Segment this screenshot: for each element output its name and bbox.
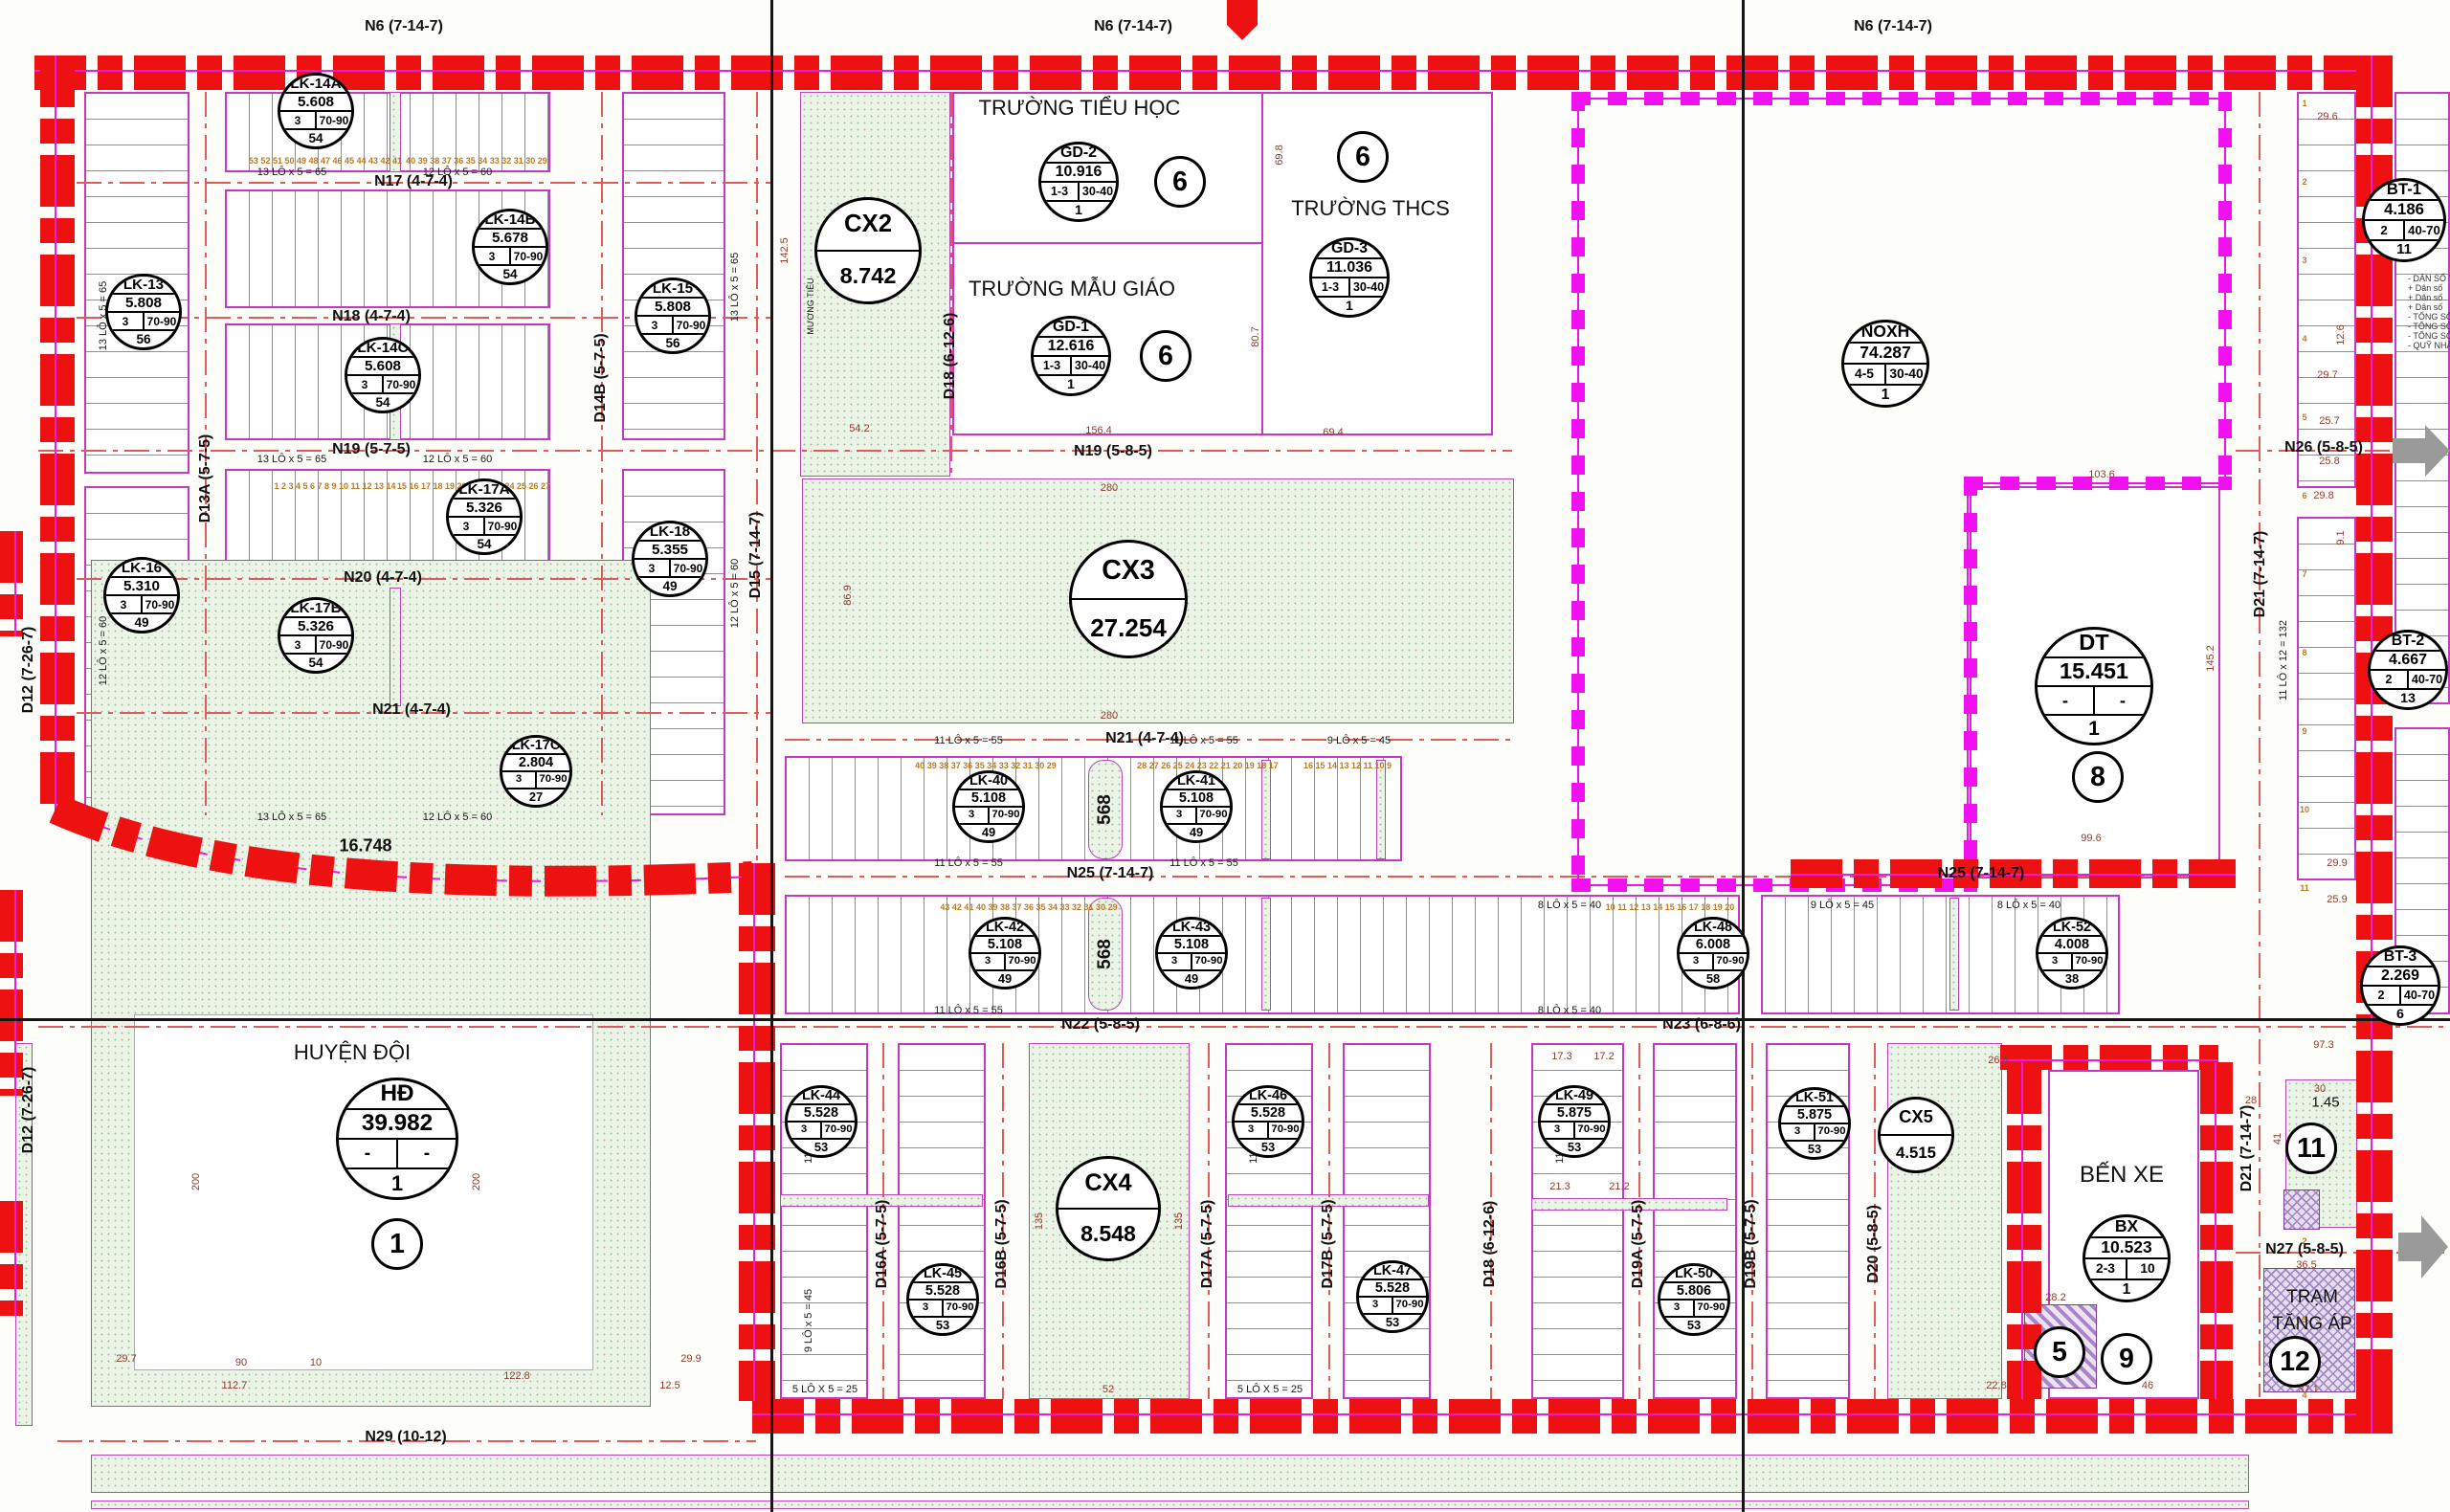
stamp-cell: 3 [788, 1123, 820, 1138]
lot-numbers: 1 [2302, 99, 2306, 108]
stamp-cell: 70-90 [942, 1301, 976, 1316]
stamp-row: 39.982 [339, 1108, 456, 1138]
lot-count-caption: 12 LÔ x 5 = 60 [423, 454, 492, 465]
unit-number-circle: 6 [1337, 131, 1389, 183]
stamp-row: 2.269 [2363, 966, 2438, 985]
dimension-text: 21.2 [1609, 1181, 1629, 1192]
stamp-floors-density: 370-90 [449, 516, 520, 534]
stamp-floors-density: 370-90 [1158, 952, 1225, 969]
stamp-row: 6.008 [1680, 935, 1747, 952]
dimension-text: 26.8 [1988, 1055, 2008, 1066]
lot-numbers: 16 15 14 13 12 11 10 9 [1303, 761, 1392, 770]
stamp-row: 2.804 [502, 753, 569, 770]
lot-count-caption: 11 LÔ x 5 = 55 [934, 857, 1003, 869]
lot-count-caption: 9 LÔ x 5 = 45 [1811, 900, 1874, 911]
stamp-cell: 3 [347, 376, 382, 392]
dimension-text: 9.1 [2335, 530, 2347, 545]
stamp-cell: 70-90 [2071, 954, 2105, 969]
stamp-cell: 3 [971, 954, 1004, 969]
dimension-text: 41 [2272, 1133, 2283, 1145]
stamp-floors-density: 370-90 [280, 110, 351, 128]
lot-count-caption: 5 LÔ X 5 = 25 [1237, 1384, 1303, 1395]
stamp-cell: - [339, 1140, 396, 1167]
stamp-floors-density: 370-90 [637, 315, 708, 333]
stamp-floors-density: 370-90 [1541, 1121, 1608, 1138]
unit-number-circle: 5 [2034, 1326, 2085, 1378]
parcel-stamp-LK-49: LK-495.875370-9053 [1538, 1085, 1611, 1158]
sheet-grid-line [770, 0, 773, 1512]
road-label: N29 (10-12) [365, 1429, 446, 1446]
stamp-cell: 3 [1680, 954, 1712, 969]
dimension-text: 69.8 [1274, 145, 1285, 165]
road-label: D18 (6-12-6) [1481, 1201, 1499, 1288]
stamp-cell: 3 [1660, 1301, 1693, 1316]
parcel-stamp-LK-40: LK-405.108370-9049 [952, 770, 1025, 843]
stamp-row: 5.608 [280, 92, 351, 110]
stamp-floors-density: 370-90 [1163, 806, 1230, 823]
stamp-cell: - [396, 1140, 456, 1167]
area-label: 568 [1095, 794, 1116, 825]
stamp-cell: 70-90 [382, 376, 418, 392]
stamp-cell: 3 [637, 317, 672, 333]
parcel-stamp-GD-1: GD-112.6161-330-401 [1031, 316, 1111, 396]
parcel-stamp-BT-2: BT-24.667240-7013 [2368, 630, 2448, 710]
road-label: D17A (5-7-5) [1199, 1200, 1216, 1289]
stamp-row: 5.355 [635, 540, 705, 558]
dimension-text: 25.7 [2319, 415, 2339, 427]
parcel-stamp-LK-45: LK-455.528370-9053 [906, 1263, 979, 1336]
stamp-cell: 3 [635, 560, 669, 576]
stamp-row: 5.806 [1660, 1281, 1727, 1299]
stamp-cell: 70-90 [1267, 1123, 1302, 1138]
stamp-row: 74.287 [1844, 342, 1927, 363]
parcel-stamp-LK-43: LK-435.108370-9049 [1155, 917, 1228, 989]
parcel-stamp-LK-41: LK-415.108370-9049 [1160, 770, 1233, 843]
stamp-cell: 30-40 [1070, 357, 1108, 374]
stamp-row: 5.108 [1158, 935, 1225, 952]
stamp-cell: 30-40 [1348, 278, 1387, 296]
road-label: D15 (7-14-7) [747, 512, 765, 599]
road-label: N21 (4-7-4) [1105, 730, 1184, 747]
dimension-text: 17.3 [1551, 1051, 1571, 1062]
dimension-text: 142.5 [779, 237, 791, 264]
stamp-cell: 3 [1158, 954, 1191, 969]
green-area-stamp-CX3: CX327.254 [1069, 540, 1188, 658]
unit-number-circle: 12 [2269, 1336, 2321, 1388]
stamp-row: 4.667 [2371, 650, 2445, 669]
stamp-cell: 70-90 [315, 112, 351, 128]
stamp-floors-density: 370-90 [2038, 952, 2105, 969]
parcel-stamp-DT: DT15.451--1 [2035, 627, 2153, 745]
dimension-text: 52 [1102, 1384, 1114, 1395]
lot-count-caption: 8 LÔ x 5 = 40 [1997, 900, 2060, 911]
lot-numbers: 28 27 26 25 24 23 22 21 20 19 18 17 [1137, 761, 1279, 770]
area-label: 16.748 [339, 836, 391, 856]
curved-boundary-band [56, 809, 752, 881]
legend-line: - QUỸ NHÀ Ở [2408, 341, 2450, 350]
stamp-cell: 70-90 [1392, 1298, 1426, 1313]
parcel-stamp-LK-52: LK-524.008370-9038 [2036, 917, 2108, 989]
stamp-cell: 3 [280, 112, 315, 128]
dimension-text: 99.6 [2081, 833, 2101, 844]
stamp-cell: 70-90 [1195, 808, 1230, 823]
road-label: D19B (5-7-5) [1743, 1199, 1760, 1288]
stamp-row: 5.528 [1359, 1279, 1426, 1296]
parcel-stamp-HĐ: HĐ39.982--1 [336, 1078, 458, 1200]
road-label: N27 (5-8-5) [2265, 1241, 2344, 1258]
parcel-stamp-LK-17A: LK-17A5.326370-9054 [446, 478, 523, 555]
stamp-floors-density: 240-70 [2371, 669, 2445, 688]
stamp-floors-density: 370-90 [475, 246, 546, 264]
stamp-row: 10.523 [2085, 1236, 2168, 1257]
stamp-row: 5.310 [106, 576, 177, 594]
stamp-cell: 70-90 [1573, 1123, 1608, 1138]
parcel-stamp-LK-14C: LK-14C5.608370-9054 [345, 337, 421, 413]
stamp-cell: 2 [2365, 221, 2403, 239]
dimension-text: 80.7 [1250, 326, 1261, 346]
legend-line: - TỔNG SỐ N [2408, 331, 2450, 341]
parcel-stamp-BX: BX10.5232-3101 [2082, 1214, 2171, 1302]
stamp-cell: 70-90 [1693, 1301, 1727, 1316]
dimension-text: 200 [471, 1173, 482, 1190]
lot-numbers: 53 52 51 50 49 48 47 46 45 44 43 42 41 [249, 156, 402, 166]
stamp-cell: 70-90 [535, 772, 569, 788]
dimension-text: 54.2 [849, 423, 869, 434]
road-label: N19 (5-8-5) [1074, 443, 1152, 460]
stamp-row: 5.608 [347, 356, 418, 374]
legend-line: + Dân số [2408, 293, 2442, 302]
road-label: D13A (5-7-5) [197, 434, 214, 523]
parcel-stamp-LK-13: LK-135.808370-9056 [105, 274, 182, 350]
stamp-row: 5.528 [909, 1281, 976, 1299]
lot-numbers: 2 [2302, 177, 2306, 187]
stamp-cell: 40-70 [2407, 671, 2445, 688]
parcel-stamp-BT-1: BT-14.186240-7011 [2362, 178, 2446, 262]
lot-numbers: 4 [2302, 334, 2306, 344]
stamp-cell: 70-90 [483, 518, 520, 534]
road-label: D21 (7-14-7) [2238, 1105, 2256, 1192]
lot-count-caption: 13 LÔ x 5 = 65 [729, 253, 741, 322]
road-label: D14B (5-7-5) [592, 333, 610, 422]
stamp-floors-density: 370-90 [788, 1121, 855, 1138]
unit-number-circle: 6 [1140, 330, 1192, 382]
stamp-cell: 1-3 [1041, 183, 1078, 200]
dimension-text: 135 [1034, 1212, 1045, 1230]
stamp-row: 4.008 [2038, 935, 2105, 952]
stamp-cell: 70-90 [509, 248, 546, 264]
dimension-text: 69.4 [1323, 427, 1343, 438]
road-label: N19 (5-7-5) [332, 441, 411, 458]
dimension-text: 122.8 [503, 1370, 530, 1382]
stamp-row: 12.616 [1034, 336, 1108, 355]
stamp-floors-density: 2-310 [2085, 1257, 2168, 1279]
lot-count-caption: 13 LÔ x 5 = 65 [257, 812, 326, 823]
parcel-stamp-LK-17C: LK-17C2.804370-9027 [500, 735, 572, 808]
dimension-text: 12.5 [659, 1380, 679, 1391]
stamp-cell: 3 [1163, 808, 1195, 823]
stamp-floors-density: 1-330-40 [1041, 181, 1116, 200]
stamp-floors-density: 370-90 [635, 558, 705, 576]
stamp-row: 10.916 [1041, 162, 1116, 181]
stamp-cell: 40-70 [2399, 987, 2438, 1004]
parcel-stamp-LK-18: LK-185.355370-9049 [632, 521, 708, 597]
road-label: N6 (7-14-7) [1094, 18, 1172, 35]
lot-count-caption: 13 LÔ x 5 = 65 [257, 454, 326, 465]
lot-count-caption: 11 LÔ x 12 = 132 [2278, 620, 2289, 700]
unit-number-circle: 1 [371, 1218, 423, 1270]
dimension-text: 280 [1101, 710, 1118, 722]
dimension-text: 17.2 [1593, 1051, 1614, 1062]
zoning-master-plan-map: N6 (7-14-7)N6 (7-14-7)N6 (7-14-7)N17 (4-… [0, 0, 2450, 1512]
stamp-row: 11.036 [1312, 257, 1387, 277]
stamp-floors-density: 370-90 [909, 1299, 976, 1316]
road-label: D12 (7-26-7) [20, 627, 37, 714]
stamp-cell: 2-3 [2085, 1259, 2126, 1279]
stamp-cell: 3 [909, 1301, 942, 1316]
green-area-stamp-CX5: CX54.515 [1878, 1097, 1954, 1173]
dimension-text: 90 [235, 1357, 247, 1368]
stamp-floors-density: 370-90 [347, 374, 418, 392]
road-label: D18 (6-12-6) [942, 313, 959, 400]
legend-line: - TỔNG SỐ N [2408, 312, 2450, 322]
road-label: N22 (5-8-5) [1061, 1016, 1140, 1034]
legend-line: + Dân số [2408, 302, 2442, 312]
stamp-row: 5.808 [637, 297, 708, 315]
stamp-floors-density: 370-90 [971, 952, 1038, 969]
road-label: N25 (7-14-7) [1067, 865, 1154, 882]
stamp-cell: 70-90 [1004, 954, 1038, 969]
parcel-stamp-LK-44: LK-445.528370-9053 [785, 1085, 857, 1158]
stamp-row: 5.108 [1163, 789, 1230, 806]
area-label: MƯƠNG TIÊU [806, 278, 815, 334]
lot-numbers: 8 [2302, 648, 2306, 657]
stamp-cell: 30-40 [1884, 365, 1927, 384]
road-label: N17 (4-7-4) [374, 173, 453, 190]
stamp-cell: 3 [449, 518, 483, 534]
lot-count-caption: 12 LÔ x 5 = 60 [729, 559, 741, 628]
stamp-cell: 3 [2038, 954, 2071, 969]
road-direction-arrow-icon [2393, 425, 2450, 477]
stamp-cell: 3 [108, 313, 143, 329]
stamp-cell: 70-90 [672, 317, 708, 333]
stamp-cell: 10 [2126, 1259, 2168, 1279]
stamp-cell: 70-90 [1814, 1124, 1848, 1140]
stamp-cell: 3 [1359, 1298, 1392, 1313]
dimension-text: 46 [2142, 1380, 2153, 1391]
lot-numbers: 10 [2300, 805, 2309, 814]
stamp-cell: 2 [2363, 987, 2399, 1004]
stamp-cell: 70-90 [820, 1123, 855, 1138]
dimension-text: 280 [1101, 482, 1118, 494]
dimension-text: 28.2 [2045, 1292, 2065, 1303]
area-label: TĂNG ÁP [2272, 1314, 2351, 1335]
stamp-floors-density: 370-90 [1359, 1296, 1426, 1313]
unit-number-circle: 6 [1154, 156, 1206, 208]
stamp-cell: 3 [475, 248, 509, 264]
unit-number-circle: 9 [2101, 1333, 2152, 1385]
dimension-text: 200 [190, 1173, 202, 1190]
road-label: N20 (4-7-4) [344, 569, 422, 587]
road-label: N25 (7-14-7) [1938, 865, 2025, 882]
stamp-floors-density: 370-90 [1781, 1123, 1848, 1140]
parcel-stamp-LK-14A: LK-14A5.608370-9054 [278, 73, 354, 149]
road-label: D17B (5-7-5) [1320, 1199, 1337, 1288]
stamp-cell: - [2093, 687, 2150, 714]
area-label: TRƯỜNG MẪU GIÁO [969, 277, 1175, 301]
dimension-text: 30 [2314, 1083, 2326, 1095]
dimension-text: 29.7 [2317, 369, 2337, 381]
stamp-floors-density: 370-90 [955, 806, 1022, 823]
lot-numbers: 7 [2302, 569, 2306, 579]
area-label: 568 [1095, 939, 1116, 969]
lot-numbers: 10 11 12 13 14 15 16 17 18 19 20 [1606, 902, 1735, 912]
stamp-cell: - [2038, 687, 2093, 714]
lot-count-caption: 13 LÔ x 5 = 65 [257, 167, 326, 178]
parcel-stamp-LK-50: LK-505.806370-9053 [1658, 1263, 1730, 1336]
dimension-text: 25.9 [2327, 894, 2347, 905]
stamp-row: 5.326 [449, 498, 520, 516]
green-area-stamp-CX2: CX28.742 [814, 197, 922, 304]
stamp-cell: 1-3 [1034, 357, 1070, 374]
parcel-stamp-LK-14B: LK-14B5.678370-9054 [472, 209, 548, 285]
road-label: D20 (5-8-5) [1865, 1205, 1882, 1283]
stamp-cell: 70-90 [141, 596, 177, 612]
lot-count-caption: 8 LÔ x 5 = 40 [1538, 1005, 1601, 1016]
stamp-cell: 70-90 [1191, 954, 1225, 969]
parcel-stamp-LK-47: LK-475.528370-9053 [1356, 1260, 1429, 1333]
stamp-cell: 2 [2371, 671, 2407, 688]
lot-count-caption: 8 LÔ x 5 = 40 [1538, 900, 1601, 911]
unit-number-circle: 11 [2285, 1123, 2337, 1174]
stamp-cell: 40-70 [2403, 221, 2443, 239]
area-label: BẾN XE [2080, 1162, 2164, 1189]
stamp-row: 5.528 [1235, 1103, 1302, 1121]
parcel-stamp-BT-3: BT-32.269240-706 [2360, 945, 2440, 1026]
road-label: N23 (6-8-6) [1662, 1016, 1741, 1034]
area-label: 1.45 [2311, 1095, 2339, 1111]
stamp-row: 5.326 [280, 616, 351, 634]
stamp-row: 5.678 [475, 228, 546, 246]
lot-count-caption: 11 LÔ x 5 = 55 [934, 1005, 1003, 1016]
dimension-text: 103.6 [2088, 469, 2115, 480]
road-label: D19A (5-7-5) [1630, 1200, 1647, 1289]
lot-count-caption: 5 LÔ X 5 = 25 [792, 1384, 857, 1395]
parcel-stamp-NOXH: NOXH74.2874-530-401 [1841, 320, 1929, 408]
lot-numbers: 43 42 41 40 39 38 37 36 35 34 33 32 31 3… [940, 902, 1117, 912]
stamp-cell: 3 [106, 596, 141, 612]
dimension-text: 156.4 [1085, 425, 1112, 436]
road-label: N6 (7-14-7) [365, 18, 443, 35]
stamp-row: 5.808 [108, 293, 179, 311]
stamp-cell: 3 [280, 636, 315, 653]
stamp-row: 5.875 [1781, 1105, 1848, 1123]
dimension-text: 36.5 [2296, 1259, 2316, 1271]
stamp-cell: 3 [1541, 1123, 1573, 1138]
lot-count-caption: 12 LÔ x 5 = 60 [98, 616, 109, 685]
green-area-stamp-CX4: CX48.548 [1056, 1156, 1161, 1261]
stamp-floors-density: 1-330-40 [1034, 355, 1108, 374]
road-label: N18 (4-7-4) [332, 308, 411, 325]
dimension-text: 25.8 [2319, 456, 2339, 467]
stamp-floors-density: 370-90 [280, 634, 351, 653]
stamp-cell: 3 [1235, 1123, 1267, 1138]
stamp-floors-density: -- [2038, 685, 2150, 714]
lot-count-caption: 11 LÔ x 5 = 55 [1169, 857, 1238, 869]
stamp-floors-density: 370-90 [1660, 1299, 1727, 1316]
lot-count-caption: 9 LÔ x 5 = 45 [803, 1289, 814, 1352]
lot-numbers: 40 39 38 37 36 35 34 33 32 31 30 29 [406, 156, 547, 166]
lot-numbers: 4 [2302, 1390, 2306, 1400]
dimension-text: 21.3 [1549, 1181, 1570, 1192]
dimension-text: 10 [310, 1357, 322, 1368]
stamp-row: 5.875 [1541, 1103, 1608, 1121]
road-label: D21 (7-14-7) [2252, 531, 2269, 618]
dimension-text: 29.8 [2313, 490, 2333, 501]
stamp-row: 5.108 [955, 789, 1022, 806]
stamp-row: 15.451 [2038, 656, 2150, 685]
stamp-floors-density: 1-330-40 [1312, 277, 1387, 296]
stamp-cell: 70-90 [315, 636, 351, 653]
dimension-text: 112.7 [222, 1380, 248, 1391]
lot-numbers: 1 2 3 4 5 6 7 8 9 10 11 12 13 14 [274, 481, 395, 491]
stamp-cell: 70-90 [669, 560, 705, 576]
road-label: N6 (7-14-7) [1854, 18, 1932, 35]
stamp-floors-density: 370-90 [1235, 1121, 1302, 1138]
parcel-stamp-LK-15: LK-155.808370-9056 [635, 278, 711, 354]
unit-number-circle: 8 [2072, 751, 2124, 803]
road-direction-arrow-icon [2398, 1215, 2448, 1279]
stamp-cell: 4-5 [1844, 365, 1884, 384]
dimension-text: 29.6 [2317, 111, 2337, 122]
stamp-cell: 3 [502, 772, 535, 788]
dimension-text: 97.3 [2313, 1039, 2333, 1051]
stamp-row: 5.528 [788, 1103, 855, 1121]
north-boundary-marker-icon [1227, 0, 1258, 40]
stamp-cell: 30-40 [1078, 183, 1116, 200]
dimension-text: 86.9 [842, 585, 854, 605]
parcel-stamp-LK-51: LK-515.875370-9053 [1778, 1087, 1851, 1160]
area-label: TRẠM [2286, 1287, 2338, 1308]
stamp-floors-density: 370-90 [106, 594, 177, 612]
road-label: D16A (5-7-5) [874, 1200, 891, 1289]
dimension-text: 29.9 [2327, 857, 2347, 869]
area-label: HUYỆN ĐỘI [294, 1040, 411, 1065]
legend-line: - TỔNG SỐ N [2408, 322, 2450, 331]
stamp-cell: 3 [1781, 1124, 1814, 1140]
stamp-cell: 70-90 [1712, 954, 1747, 969]
lot-numbers: 3 [2302, 256, 2306, 265]
dimension-text: 29.9 [680, 1353, 701, 1365]
stamp-cell: 1-3 [1312, 278, 1348, 296]
legend-line: - DÂN SỐ TỔ [2408, 274, 2450, 283]
stamp-floors-density: 370-90 [1680, 952, 1747, 969]
stamp-floors-density: 370-90 [108, 311, 179, 329]
stamp-cell: 70-90 [143, 313, 179, 329]
dimension-text: 29.7 [116, 1353, 136, 1365]
lot-numbers: 5 [2302, 412, 2306, 422]
lot-numbers: 11 [2300, 883, 2309, 893]
lot-count-caption: 9 LÔ x 5 = 45 [1327, 735, 1391, 746]
stamp-floors-density: 240-70 [2363, 985, 2438, 1004]
parcel-stamp-GD-3: GD-311.0361-330-401 [1309, 237, 1390, 318]
stamp-floors-density: 240-70 [2365, 219, 2443, 239]
stamp-row: 5.108 [971, 935, 1038, 952]
dimension-text: 22.8 [1986, 1380, 2006, 1391]
stamp-floors-density: 4-530-40 [1844, 363, 1927, 384]
dimension-text: 12.6 [2335, 324, 2347, 345]
stamp-row: 4.186 [2365, 199, 2443, 219]
stamp-floors-density: 370-90 [502, 770, 569, 788]
